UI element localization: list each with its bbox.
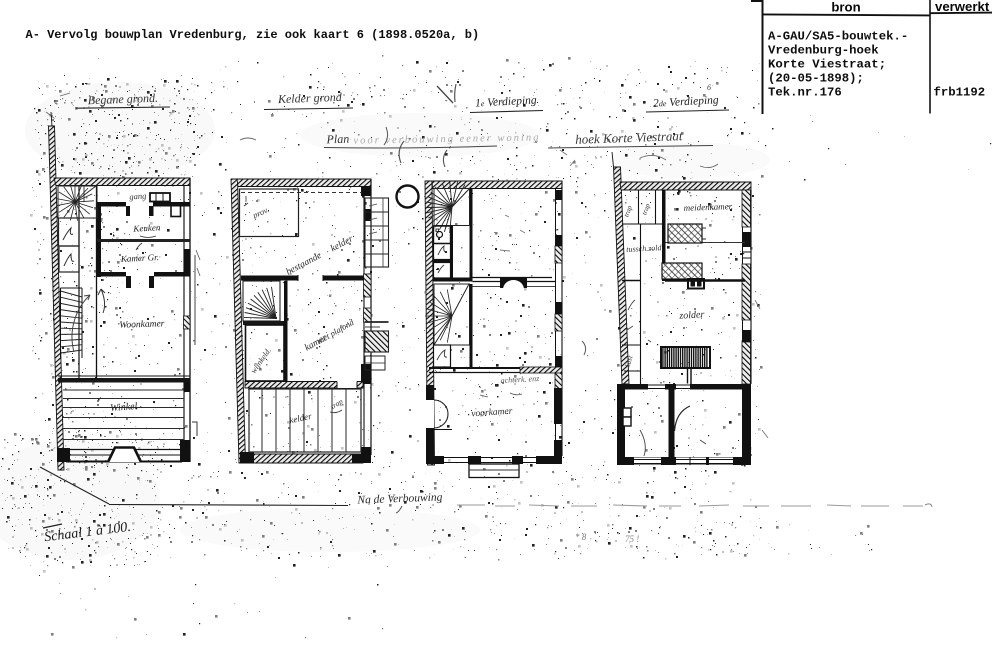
svg-text:zolder: zolder (678, 309, 705, 321)
svg-text:Korte Viestraat;: Korte Viestraat; (768, 58, 886, 72)
svg-text:Begane grond.: Begane grond. (88, 91, 159, 107)
svg-text:Keuken: Keuken (132, 222, 161, 233)
svg-text:Winkel: Winkel (110, 401, 138, 414)
svg-text:Vredenburg-hoek: Vredenburg-hoek (768, 43, 879, 57)
svg-text:gang: gang (129, 190, 147, 201)
svg-text:Plan: Plan (325, 132, 349, 147)
svg-text:Kamer Gr.: Kamer Gr. (120, 252, 159, 264)
svg-text:meidenkamer: meidenkamer (683, 201, 732, 213)
svg-text:A- Vervolg bouwplan Vredenburg: A- Vervolg bouwplan Vredenburg, zie ook … (26, 28, 480, 42)
svg-text:6: 6 (707, 83, 711, 92)
svg-text:Kelder grond: Kelder grond (277, 90, 343, 106)
svg-text:verwerkt: verwerkt (935, 0, 990, 14)
svg-text:Woonkamer: Woonkamer (119, 319, 165, 331)
svg-text:A-GAU/SA5-bouwtek.-: A-GAU/SA5-bouwtek.- (768, 29, 908, 43)
svg-text:* 8: * 8 (575, 532, 587, 542)
svg-text:bron: bron (831, 0, 860, 14)
svg-text:75 !: 75 ! (625, 534, 639, 544)
svg-text:(20-05-1898);: (20-05-1898); (768, 72, 864, 86)
svg-text:Tek.nr.176: Tek.nr.176 (768, 86, 842, 100)
svg-text:frb1192: frb1192 (934, 86, 986, 100)
